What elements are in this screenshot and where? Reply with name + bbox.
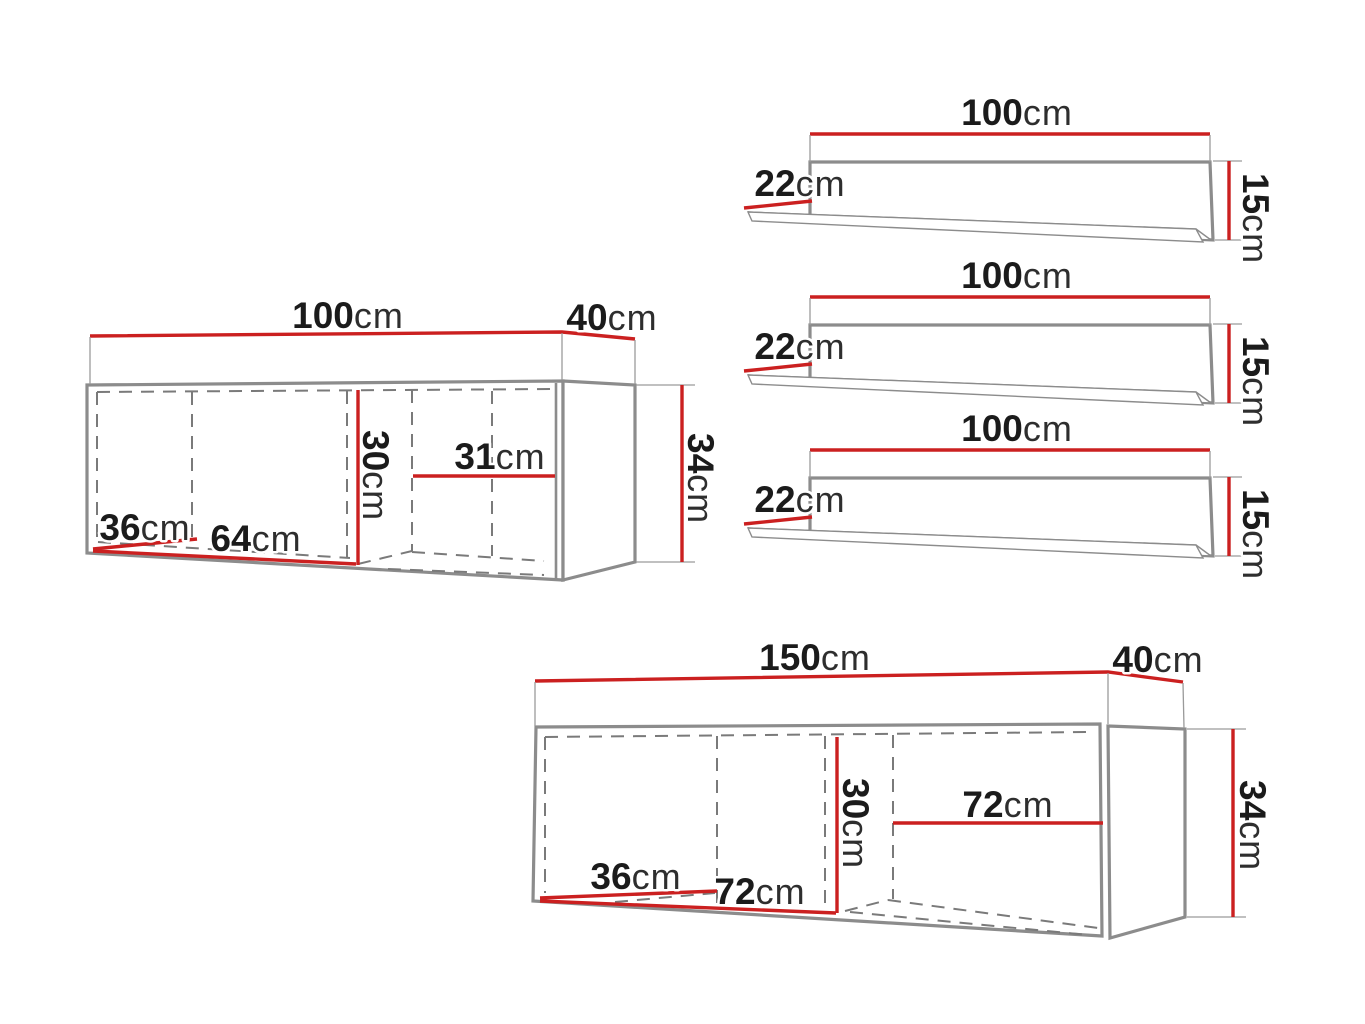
cabinet-100-interior-height-label: 30cm	[355, 430, 396, 521]
cabinet-100-interior-left-width-label: 64cm	[210, 518, 301, 559]
shelf-3-width-dimension	[810, 450, 1210, 478]
shelf-2-drawing: 100cm 22cm 15cm	[744, 255, 1276, 427]
diagram-canvas: 100cm 40cm 34cm 30cm 31cm 36cm 64cm 100c…	[0, 0, 1365, 1024]
shelf-3-height-label: 15cm	[1235, 489, 1276, 580]
shelf-1-width-dimension	[810, 134, 1210, 162]
furniture-dimension-diagram: 100cm 40cm 34cm 30cm 31cm 36cm 64cm 100c…	[0, 0, 1365, 1024]
cabinet-150-width-dimension	[535, 672, 1184, 728]
cabinet-150-drawing: 150cm 40cm 34cm 30cm 72cm 36cm 72cm	[533, 637, 1273, 938]
shelf-3-depth-label: 22cm	[754, 479, 845, 520]
shelf-1-depth-label: 22cm	[754, 163, 845, 204]
cabinet-100-width-dimension	[90, 332, 635, 384]
shelf-2-depth-label: 22cm	[754, 326, 845, 367]
cabinet-100-side-face	[563, 381, 635, 580]
shelf-2-width-dimension	[810, 297, 1210, 325]
cabinet-100-height-label: 34cm	[680, 433, 721, 524]
cabinet-150-interior-right-width-label: 72cm	[962, 784, 1053, 825]
cabinet-100-width-label: 100cm	[292, 295, 404, 336]
shelf-1-drawing: 100cm 22cm 15cm	[744, 92, 1276, 264]
cabinet-150-interior-height-label: 30cm	[835, 778, 876, 869]
shelf-3-drawing: 100cm 22cm 15cm	[744, 408, 1276, 580]
cabinet-150-height-label: 34cm	[1232, 780, 1273, 871]
shelf-1-width-label: 100cm	[961, 92, 1073, 133]
cabinet-150-interior-depth-label: 36cm	[590, 856, 681, 897]
shelf-1-height-label: 15cm	[1235, 173, 1276, 264]
cabinet-100-depth-label: 40cm	[566, 297, 657, 338]
shelf-2-width-label: 100cm	[961, 255, 1073, 296]
cabinet-150-width-label: 150cm	[759, 637, 871, 678]
cabinet-150-interior-left-width-label: 72cm	[714, 871, 805, 912]
cabinet-100-drawing: 100cm 40cm 34cm 30cm 31cm 36cm 64cm	[87, 295, 721, 580]
cabinet-150-depth-label: 40cm	[1112, 639, 1203, 680]
cabinet-150-side-face	[1108, 726, 1185, 938]
shelf-3-width-label: 100cm	[961, 408, 1073, 449]
shelf-2-height-label: 15cm	[1235, 336, 1276, 427]
cabinet-100-interior-right-width-label: 31cm	[454, 436, 545, 477]
cabinet-100-interior-depth-label: 36cm	[99, 507, 190, 548]
